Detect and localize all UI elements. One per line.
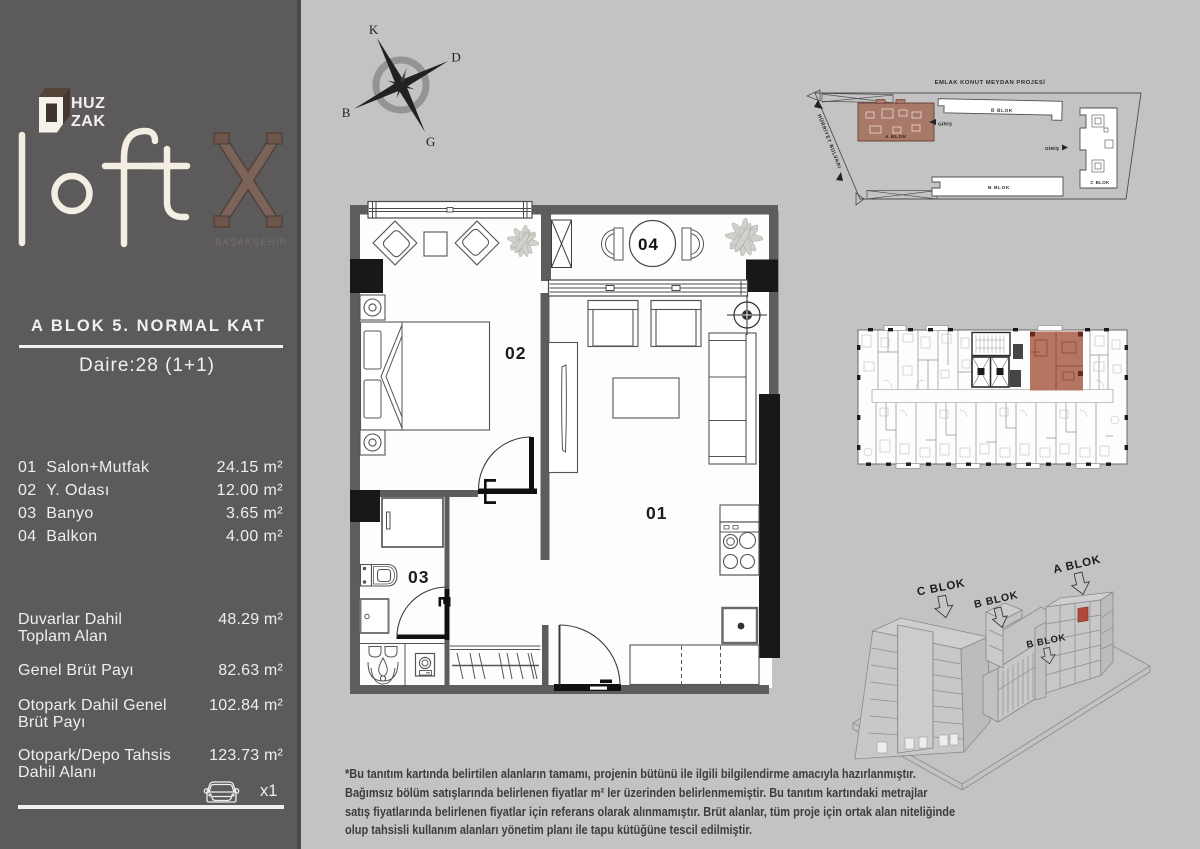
svg-text:EMLAK KONUT MEYDAN PROJESİ: EMLAK KONUT MEYDAN PROJESİ [935, 79, 1046, 86]
svg-text:B BLOK: B BLOK [988, 185, 1010, 191]
svg-text:GİRİŞ: GİRİŞ [1045, 145, 1059, 151]
svg-text:C BLOK: C BLOK [916, 577, 966, 598]
svg-text:D: D [451, 49, 460, 64]
svg-text:HÜRRİYET BULVARI: HÜRRİYET BULVARI [816, 113, 843, 170]
svg-text:G: G [426, 134, 435, 149]
svg-text:03: 03 [408, 567, 429, 587]
svg-text:K: K [369, 22, 379, 37]
svg-text:01: 01 [646, 503, 667, 523]
svg-text:GİRİŞ: GİRİŞ [938, 121, 952, 127]
svg-text:C BLOK: C BLOK [1090, 180, 1110, 185]
svg-text:A BLOK: A BLOK [885, 134, 907, 140]
svg-text:04: 04 [638, 235, 659, 254]
svg-text:B: B [342, 105, 351, 120]
svg-text:B BLOK: B BLOK [991, 108, 1013, 114]
svg-text:02: 02 [505, 343, 526, 363]
